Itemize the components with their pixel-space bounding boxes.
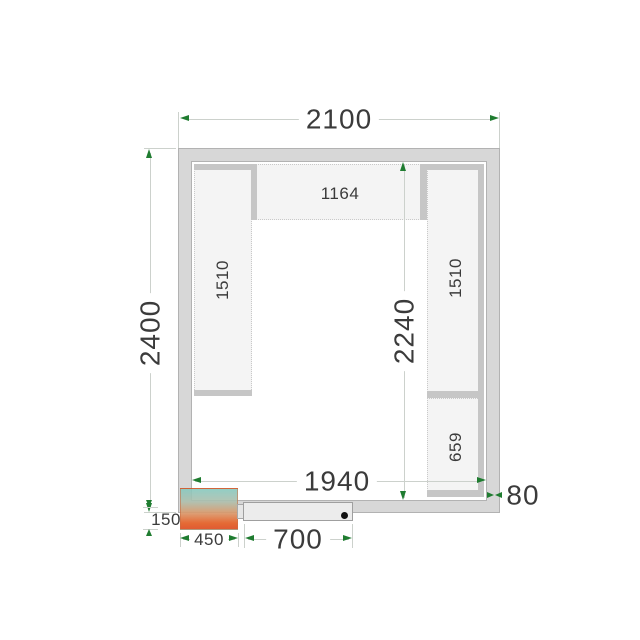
shelf-left-top-edge <box>194 164 252 170</box>
door-leaf <box>243 502 353 521</box>
dim-wall-thickness-label: 80 <box>506 480 539 509</box>
arrowhead-down-icon <box>400 491 406 500</box>
arrowhead-left-icon <box>495 492 502 498</box>
dim-outer-width-label: 2100 <box>299 104 379 133</box>
dim-interior-width-label: 1940 <box>297 466 377 495</box>
shelf-right-bottom-edge <box>427 490 484 497</box>
arrowhead-right-icon <box>487 492 494 498</box>
dim-interior-height-label: 2240 <box>389 291 418 371</box>
arrowhead-left-icon <box>192 477 201 483</box>
arrowhead-right-icon <box>229 535 238 541</box>
arrowhead-down-icon <box>146 500 152 507</box>
dim-unit-protrusion-label: 150 <box>151 511 181 529</box>
ext-line-700-right <box>352 524 353 548</box>
shelf-right-top-edge <box>427 164 484 170</box>
cooling-unit <box>180 488 238 530</box>
arrowhead-up-icon <box>146 529 152 536</box>
arrowhead-right-icon <box>490 115 499 121</box>
arrowhead-up-icon <box>146 149 152 158</box>
shelf-top-right-edge <box>420 164 427 220</box>
arrowhead-right-icon <box>343 535 352 541</box>
arrowhead-left-icon <box>245 535 254 541</box>
shelf-left-label: 1510 <box>214 260 232 300</box>
dim-door-width-label: 700 <box>266 524 330 553</box>
dim-outer-height-label: 2400 <box>135 293 164 373</box>
shelf-right-lower-label: 659 <box>447 432 465 462</box>
shelf-right-wall-edge <box>478 164 484 497</box>
ext-line-top-left <box>178 112 179 148</box>
arrowhead-left-icon <box>180 535 189 541</box>
floor-plan-canvas: 2100 2400 2240 1940 80 150 450 700 1164 … <box>0 0 640 640</box>
shelf-top-label: 1164 <box>321 185 360 203</box>
ext-line-top-right <box>499 112 500 148</box>
arrowhead-left-icon <box>180 115 189 121</box>
arrowhead-up-icon <box>400 162 406 171</box>
shelf-top-left-edge <box>251 164 257 220</box>
shelf-right-divider <box>427 391 484 398</box>
dim-unit-width-label: 450 <box>190 531 228 549</box>
ext-line-450-right <box>238 533 239 547</box>
arrowhead-right-icon <box>477 477 486 483</box>
ext-line-150-top <box>143 507 158 508</box>
shelf-left-bottom-edge <box>194 390 252 396</box>
door-handle <box>341 512 348 519</box>
shelf-right-upper-label: 1510 <box>447 258 465 298</box>
